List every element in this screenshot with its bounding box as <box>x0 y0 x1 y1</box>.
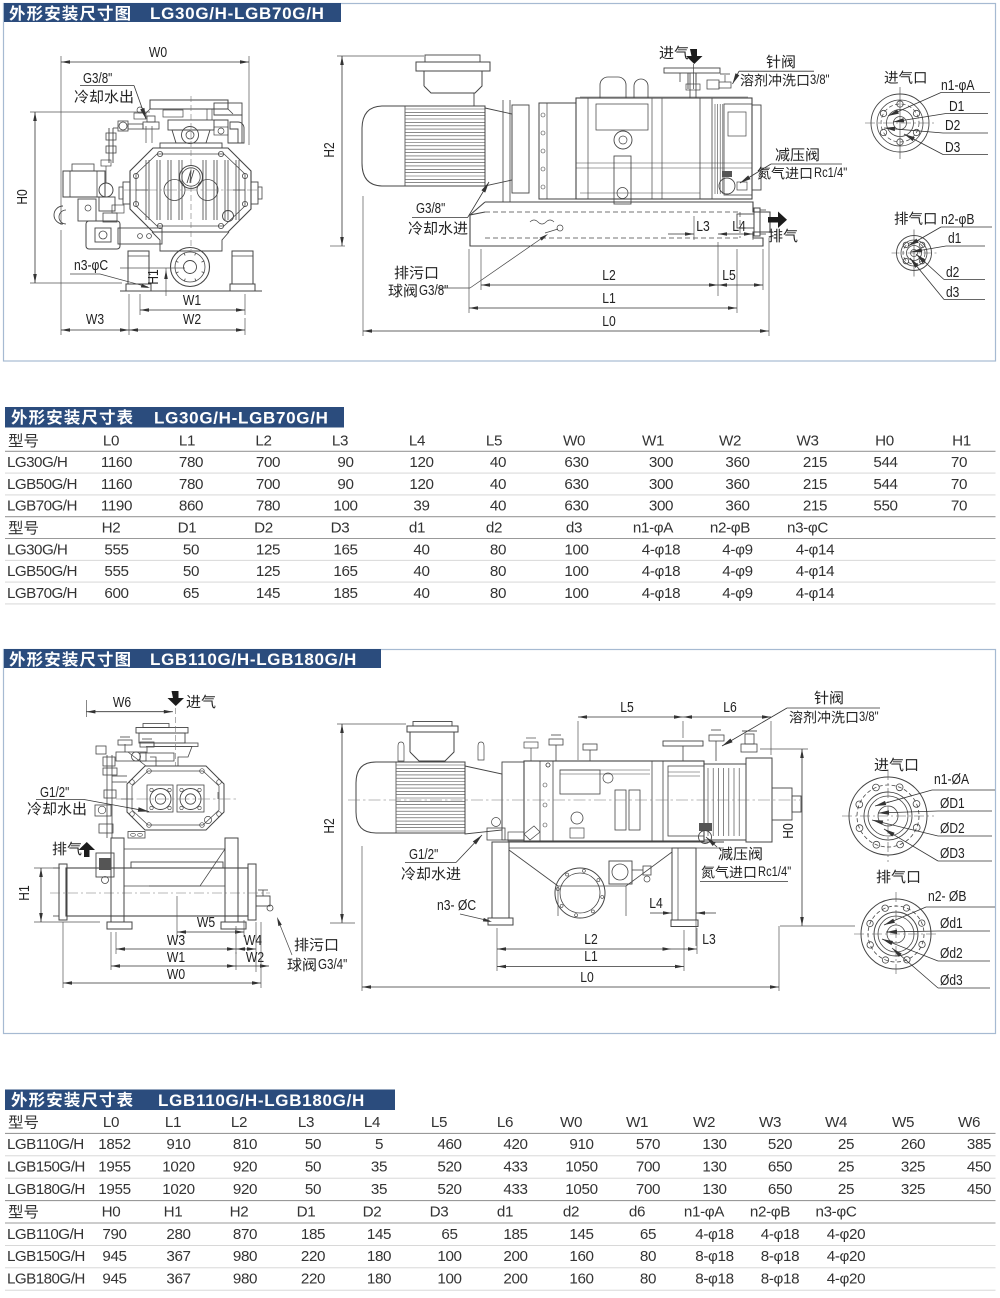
svg-text:3/8": 3/8" <box>810 72 830 87</box>
svg-text:100: 100 <box>437 1271 461 1288</box>
svg-text:35: 35 <box>371 1159 387 1176</box>
svg-text:50: 50 <box>305 1159 321 1176</box>
svg-text:LG30G/H: LG30G/H <box>7 454 67 471</box>
svg-text:d2: d2 <box>486 520 502 537</box>
svg-text:145: 145 <box>569 1226 593 1243</box>
svg-text:W6: W6 <box>958 1114 980 1131</box>
svg-text:H1: H1 <box>164 1203 183 1220</box>
svg-text:5: 5 <box>375 1136 383 1153</box>
svg-text:145: 145 <box>256 585 280 602</box>
svg-text:H0: H0 <box>102 1203 121 1220</box>
svg-text:420: 420 <box>503 1136 527 1153</box>
svg-text:n1-φA: n1-φA <box>941 77 975 94</box>
svg-text:630: 630 <box>564 454 588 471</box>
svg-text:215: 215 <box>803 476 827 493</box>
svg-text:50: 50 <box>305 1136 321 1153</box>
svg-text:ØD3: ØD3 <box>940 845 965 862</box>
svg-text:n1-φA: n1-φA <box>684 1203 725 1220</box>
svg-text:H0: H0 <box>875 432 894 449</box>
svg-text:Rc1/4": Rc1/4" <box>814 165 847 180</box>
svg-text:W3: W3 <box>759 1114 781 1131</box>
svg-text:LG30G/H-LGB70G/H: LG30G/H-LGB70G/H <box>154 409 329 428</box>
svg-text:433: 433 <box>503 1159 527 1176</box>
svg-text:780: 780 <box>179 454 203 471</box>
svg-text:L4: L4 <box>732 218 746 235</box>
svg-text:LGB150G/H: LGB150G/H <box>7 1159 85 1176</box>
svg-text:W1: W1 <box>642 432 664 449</box>
svg-text:300: 300 <box>649 498 673 515</box>
svg-text:ØD2: ØD2 <box>940 820 965 837</box>
svg-text:L1: L1 <box>602 290 616 307</box>
svg-text:D1: D1 <box>297 1203 316 1220</box>
svg-text:n3-φC: n3-φC <box>787 520 828 537</box>
svg-text:367: 367 <box>166 1271 190 1288</box>
svg-text:L6: L6 <box>497 1114 513 1131</box>
svg-text:120: 120 <box>409 476 433 493</box>
svg-text:W6: W6 <box>113 694 132 711</box>
svg-text:630: 630 <box>564 498 588 515</box>
svg-text:LGB180G/H: LGB180G/H <box>7 1271 85 1288</box>
svg-text:W2: W2 <box>693 1114 715 1131</box>
svg-text:n2- ØB: n2- ØB <box>928 888 966 905</box>
svg-text:860: 860 <box>179 498 203 515</box>
svg-text:360: 360 <box>725 476 749 493</box>
svg-text:910: 910 <box>166 1136 190 1153</box>
svg-text:L2: L2 <box>602 267 616 284</box>
svg-text:D1: D1 <box>949 98 964 115</box>
svg-text:LGB110G/H: LGB110G/H <box>7 1226 84 1243</box>
svg-text:570: 570 <box>636 1136 660 1153</box>
svg-text:165: 165 <box>333 541 357 558</box>
svg-text:160: 160 <box>569 1271 593 1288</box>
svg-text:80: 80 <box>490 541 506 558</box>
svg-text:LG30G/H-LGB70G/H: LG30G/H-LGB70G/H <box>150 4 325 23</box>
svg-text:100: 100 <box>333 498 357 515</box>
svg-text:4-φ20: 4-φ20 <box>827 1248 866 1265</box>
svg-text:360: 360 <box>725 498 749 515</box>
svg-text:385: 385 <box>967 1136 991 1153</box>
svg-text:W0: W0 <box>149 44 168 61</box>
svg-text:W1: W1 <box>167 949 185 966</box>
svg-text:d3: d3 <box>566 520 582 537</box>
svg-text:D2: D2 <box>363 1203 382 1220</box>
svg-text:D3: D3 <box>945 139 960 156</box>
svg-text:100: 100 <box>564 541 588 558</box>
svg-text:780: 780 <box>256 498 280 515</box>
svg-text:360: 360 <box>725 454 749 471</box>
svg-text:n1-ØA: n1-ØA <box>934 771 970 788</box>
svg-text:130: 130 <box>702 1136 726 1153</box>
svg-text:980: 980 <box>233 1271 257 1288</box>
svg-text:LGB70G/H: LGB70G/H <box>7 585 77 602</box>
svg-text:d3: d3 <box>946 284 959 301</box>
svg-text:d1: d1 <box>497 1203 513 1220</box>
svg-text:35: 35 <box>371 1181 387 1198</box>
svg-text:Ød3: Ød3 <box>940 972 963 989</box>
svg-text:100: 100 <box>564 585 588 602</box>
svg-text:4-φ20: 4-φ20 <box>827 1271 866 1288</box>
svg-text:433: 433 <box>503 1181 527 1198</box>
svg-text:65: 65 <box>183 585 199 602</box>
svg-text:L3: L3 <box>702 931 716 948</box>
svg-text:600: 600 <box>104 585 128 602</box>
svg-text:W1: W1 <box>626 1114 648 1131</box>
svg-text:LGB70G/H: LGB70G/H <box>7 498 77 515</box>
svg-text:70: 70 <box>951 498 967 515</box>
svg-text:4-φ9: 4-φ9 <box>722 541 752 558</box>
svg-text:80: 80 <box>490 563 506 580</box>
svg-text:130: 130 <box>702 1181 726 1198</box>
svg-text:L2: L2 <box>255 432 271 449</box>
svg-text:H2: H2 <box>230 1203 249 1220</box>
svg-text:220: 220 <box>301 1271 325 1288</box>
svg-text:80: 80 <box>640 1271 656 1288</box>
svg-text:LGB110G/H-LGB180G/H: LGB110G/H-LGB180G/H <box>150 650 357 669</box>
svg-text:W3: W3 <box>86 311 105 328</box>
svg-text:LGB180G/H: LGB180G/H <box>7 1181 85 1198</box>
svg-text:W3: W3 <box>167 932 186 949</box>
svg-text:W1: W1 <box>183 292 201 309</box>
svg-text:4-φ14: 4-φ14 <box>796 541 835 558</box>
svg-text:1852: 1852 <box>98 1136 130 1153</box>
svg-text:65: 65 <box>441 1226 457 1243</box>
svg-text:945: 945 <box>102 1271 126 1288</box>
svg-text:100: 100 <box>564 563 588 580</box>
svg-text:450: 450 <box>967 1159 991 1176</box>
svg-text:700: 700 <box>256 476 280 493</box>
svg-text:L0: L0 <box>103 1114 119 1131</box>
svg-text:H1: H1 <box>16 885 33 900</box>
svg-text:180: 180 <box>367 1271 391 1288</box>
svg-text:630: 630 <box>564 476 588 493</box>
svg-text:L3: L3 <box>298 1114 314 1131</box>
svg-text:LGB150G/H: LGB150G/H <box>7 1248 85 1265</box>
svg-text:520: 520 <box>437 1159 461 1176</box>
svg-text:4-φ14: 4-φ14 <box>796 563 835 580</box>
svg-text:1160: 1160 <box>101 454 132 471</box>
svg-text:H1: H1 <box>145 269 162 284</box>
svg-text:L1: L1 <box>179 432 195 449</box>
svg-text:1050: 1050 <box>565 1181 597 1198</box>
svg-text:460: 460 <box>437 1136 461 1153</box>
svg-text:W0: W0 <box>167 966 186 983</box>
svg-text:L5: L5 <box>620 699 634 716</box>
svg-text:L2: L2 <box>231 1114 247 1131</box>
svg-text:520: 520 <box>768 1136 792 1153</box>
svg-text:1020: 1020 <box>162 1159 194 1176</box>
svg-text:L4: L4 <box>364 1114 380 1131</box>
svg-text:700: 700 <box>636 1159 660 1176</box>
svg-text:G3/8": G3/8" <box>419 282 449 299</box>
svg-text:H1: H1 <box>952 432 971 449</box>
svg-text:50: 50 <box>183 563 199 580</box>
svg-text:H2: H2 <box>102 520 121 537</box>
svg-text:280: 280 <box>166 1226 190 1243</box>
svg-text:W4: W4 <box>244 932 263 949</box>
svg-text:3/8": 3/8" <box>859 709 879 724</box>
svg-text:n2-φB: n2-φB <box>750 1203 790 1220</box>
svg-text:L0: L0 <box>103 432 119 449</box>
svg-text:L4: L4 <box>409 432 425 449</box>
svg-text:70: 70 <box>951 454 967 471</box>
svg-text:G1/2": G1/2" <box>40 784 70 801</box>
svg-text:Ød1: Ød1 <box>940 915 963 932</box>
svg-text:544: 544 <box>873 476 897 493</box>
svg-text:8-φ18: 8-φ18 <box>695 1271 734 1288</box>
svg-text:L0: L0 <box>602 313 616 330</box>
svg-text:L4: L4 <box>649 895 663 912</box>
svg-text:25: 25 <box>838 1136 854 1153</box>
svg-text:80: 80 <box>640 1248 656 1265</box>
svg-text:Ød2: Ød2 <box>940 945 963 962</box>
svg-text:700: 700 <box>636 1181 660 1198</box>
svg-text:790: 790 <box>102 1226 126 1243</box>
svg-text:L2: L2 <box>584 931 598 948</box>
svg-text:40: 40 <box>413 585 429 602</box>
svg-text:D2: D2 <box>254 520 273 537</box>
svg-text:d1: d1 <box>948 230 961 247</box>
svg-text:n3-φC: n3-φC <box>815 1203 856 1220</box>
svg-text:1160: 1160 <box>101 476 132 493</box>
svg-text:200: 200 <box>503 1248 527 1265</box>
svg-text:367: 367 <box>166 1248 190 1265</box>
svg-text:50: 50 <box>183 541 199 558</box>
svg-text:220: 220 <box>301 1248 325 1265</box>
svg-text:920: 920 <box>233 1181 257 1198</box>
svg-text:215: 215 <box>803 498 827 515</box>
svg-text:870: 870 <box>233 1226 257 1243</box>
svg-text:65: 65 <box>640 1226 656 1243</box>
svg-text:L1: L1 <box>584 948 598 965</box>
svg-text:1050: 1050 <box>565 1159 597 1176</box>
svg-text:W2: W2 <box>246 949 264 966</box>
svg-text:25: 25 <box>838 1181 854 1198</box>
svg-text:H2: H2 <box>321 818 338 833</box>
svg-text:4-φ9: 4-φ9 <box>722 585 752 602</box>
svg-text:n3-φC: n3-φC <box>74 257 108 274</box>
svg-text:945: 945 <box>102 1248 126 1265</box>
svg-text:555: 555 <box>104 563 128 580</box>
svg-text:L3: L3 <box>696 218 710 235</box>
svg-text:1190: 1190 <box>101 498 132 515</box>
svg-text:260: 260 <box>901 1136 925 1153</box>
svg-text:80: 80 <box>490 585 506 602</box>
svg-text:4-φ18: 4-φ18 <box>761 1226 800 1243</box>
svg-text:8-φ18: 8-φ18 <box>761 1271 800 1288</box>
svg-text:LGB50G/H: LGB50G/H <box>7 563 77 580</box>
svg-text:4-φ18: 4-φ18 <box>695 1226 734 1243</box>
svg-text:980: 980 <box>233 1248 257 1265</box>
svg-text:W2: W2 <box>183 311 201 328</box>
svg-text:G3/4": G3/4" <box>318 956 348 973</box>
svg-text:120: 120 <box>409 454 433 471</box>
svg-text:D2: D2 <box>945 117 960 134</box>
svg-text:40: 40 <box>413 563 429 580</box>
svg-text:125: 125 <box>256 541 280 558</box>
svg-text:40: 40 <box>413 541 429 558</box>
svg-text:520: 520 <box>437 1181 461 1198</box>
svg-text:300: 300 <box>649 454 673 471</box>
svg-text:d6: d6 <box>629 1203 645 1220</box>
svg-text:910: 910 <box>569 1136 593 1153</box>
svg-text:180: 180 <box>367 1248 391 1265</box>
svg-text:L5: L5 <box>431 1114 447 1131</box>
svg-text:165: 165 <box>333 563 357 580</box>
svg-text:1955: 1955 <box>98 1181 130 1198</box>
svg-text:H2: H2 <box>321 142 338 157</box>
svg-text:L0: L0 <box>580 969 594 986</box>
svg-text:H0: H0 <box>780 823 797 839</box>
svg-text:650: 650 <box>768 1159 792 1176</box>
svg-text:d2: d2 <box>563 1203 579 1220</box>
svg-text:n2-φB: n2-φB <box>710 520 750 537</box>
svg-text:325: 325 <box>901 1159 925 1176</box>
svg-text:W4: W4 <box>825 1114 847 1131</box>
svg-text:W0: W0 <box>560 1114 582 1131</box>
svg-text:n1-φA: n1-φA <box>633 520 674 537</box>
svg-text:D3: D3 <box>331 520 350 537</box>
svg-text:n2-φB: n2-φB <box>941 211 975 228</box>
svg-text:50: 50 <box>305 1181 321 1198</box>
svg-text:300: 300 <box>649 476 673 493</box>
svg-text:L3: L3 <box>332 432 348 449</box>
svg-text:1020: 1020 <box>162 1181 194 1198</box>
svg-text:200: 200 <box>503 1271 527 1288</box>
svg-text:D3: D3 <box>430 1203 449 1220</box>
svg-text:40: 40 <box>490 498 506 515</box>
svg-text:550: 550 <box>873 498 897 515</box>
svg-text:40: 40 <box>490 454 506 471</box>
svg-text:LGB110G/H-LGB180G/H: LGB110G/H-LGB180G/H <box>158 1091 365 1110</box>
svg-text:4-φ20: 4-φ20 <box>827 1226 866 1243</box>
svg-text:LGB50G/H: LGB50G/H <box>7 476 77 493</box>
svg-text:4-φ18: 4-φ18 <box>642 563 681 580</box>
svg-text:8-φ18: 8-φ18 <box>695 1248 734 1265</box>
svg-text:215: 215 <box>803 454 827 471</box>
svg-text:ØD1: ØD1 <box>940 795 965 812</box>
svg-text:90: 90 <box>337 476 353 493</box>
svg-text:W5: W5 <box>892 1114 914 1131</box>
svg-text:325: 325 <box>901 1181 925 1198</box>
svg-text:H0: H0 <box>14 189 31 205</box>
svg-text:G1/2": G1/2" <box>409 846 439 863</box>
svg-text:W0: W0 <box>563 432 585 449</box>
svg-text:d2: d2 <box>946 264 959 281</box>
svg-text:700: 700 <box>256 454 280 471</box>
svg-text:4-φ18: 4-φ18 <box>642 541 681 558</box>
svg-text:650: 650 <box>768 1181 792 1198</box>
svg-text:780: 780 <box>179 476 203 493</box>
svg-text:39: 39 <box>413 498 429 515</box>
svg-text:70: 70 <box>951 476 967 493</box>
svg-text:LGB110G/H: LGB110G/H <box>7 1136 84 1153</box>
svg-text:185: 185 <box>333 585 357 602</box>
svg-text:L6: L6 <box>723 699 737 716</box>
svg-text:L1: L1 <box>165 1114 181 1131</box>
svg-text:Rc1/4": Rc1/4" <box>758 864 791 879</box>
svg-text:4-φ14: 4-φ14 <box>796 585 835 602</box>
svg-text:920: 920 <box>233 1159 257 1176</box>
svg-text:8-φ18: 8-φ18 <box>761 1248 800 1265</box>
svg-text:L5: L5 <box>486 432 502 449</box>
svg-text:D1: D1 <box>178 520 197 537</box>
svg-text:40: 40 <box>490 476 506 493</box>
svg-text:90: 90 <box>337 454 353 471</box>
svg-text:W5: W5 <box>197 914 216 931</box>
svg-text:G3/8": G3/8" <box>416 200 446 217</box>
svg-text:185: 185 <box>503 1226 527 1243</box>
svg-text:125: 125 <box>256 563 280 580</box>
svg-text:555: 555 <box>104 541 128 558</box>
svg-text:LG30G/H: LG30G/H <box>7 541 67 558</box>
svg-text:25: 25 <box>838 1159 854 1176</box>
svg-text:L5: L5 <box>722 267 736 284</box>
svg-text:W3: W3 <box>796 432 818 449</box>
svg-text:4-φ18: 4-φ18 <box>642 585 681 602</box>
svg-text:4-φ9: 4-φ9 <box>722 563 752 580</box>
svg-text:145: 145 <box>367 1226 391 1243</box>
svg-text:100: 100 <box>437 1248 461 1265</box>
svg-text:n3- ØC: n3- ØC <box>437 897 476 914</box>
svg-text:d1: d1 <box>409 520 425 537</box>
svg-text:185: 185 <box>301 1226 325 1243</box>
svg-text:1955: 1955 <box>98 1159 130 1176</box>
svg-text:130: 130 <box>702 1159 726 1176</box>
svg-text:W2: W2 <box>719 432 741 449</box>
svg-text:450: 450 <box>967 1181 991 1198</box>
svg-text:160: 160 <box>569 1248 593 1265</box>
svg-text:544: 544 <box>873 454 897 471</box>
svg-text:G3/8": G3/8" <box>83 70 113 87</box>
svg-text:810: 810 <box>233 1136 257 1153</box>
